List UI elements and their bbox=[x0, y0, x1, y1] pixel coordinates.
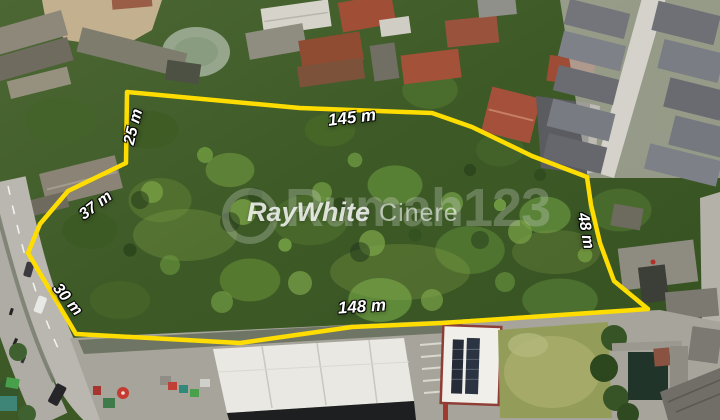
raywhite-office-text: Cinere bbox=[379, 199, 459, 228]
raywhite-brand-text: RayWhite bbox=[247, 197, 370, 228]
top-village-roofs bbox=[245, 0, 517, 87]
warehouse-roof bbox=[213, 338, 414, 413]
top-left-village bbox=[0, 0, 230, 99]
solar-roof-building bbox=[441, 325, 502, 405]
raywhite-watermark: RayWhite Cinere bbox=[247, 197, 459, 228]
aerial-photo: Rumah123 RayWhite Cinere 25 m 145 m 37 m… bbox=[0, 0, 720, 420]
measurement-label-bottom: 148 m bbox=[337, 295, 386, 318]
right-housing-complex bbox=[543, 0, 720, 187]
